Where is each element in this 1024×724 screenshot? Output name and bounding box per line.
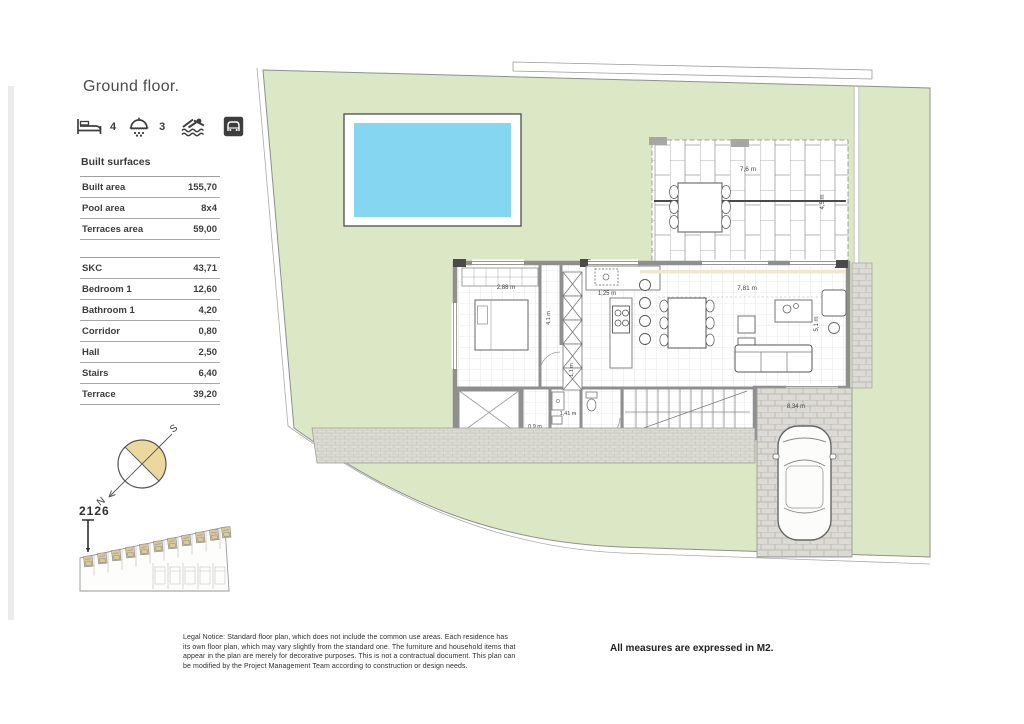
terrace-dining-table (670, 183, 731, 232)
swimming-pool (344, 114, 521, 226)
driveway: 8,34 m (757, 388, 852, 557)
gravel-path (312, 428, 755, 463)
bed-icon (76, 117, 102, 136)
built-surfaces-table-areas: Built area155,70 Pool area8x4 Terraces a… (80, 176, 220, 240)
dim-kitchen-width: 1,25 m (598, 291, 616, 297)
bedroom-count: 4 (110, 121, 116, 133)
amenities-row: 4 3 (76, 116, 244, 137)
table-row: Built area155,70 (80, 177, 220, 198)
floor-plan-drawing: 7,6 m 4,5 m 2,88 m 4,1 m (250, 40, 940, 630)
built-surfaces-table-rooms: SKC43,71 Bedroom 112,60 Bathroom 14,20 C… (80, 257, 220, 405)
dim-terrace-width: 7,6 m (740, 166, 756, 173)
compass-south-label: S (168, 422, 180, 435)
table-row: Hall2,50 (80, 342, 220, 363)
roof-terrace: 7,6 m 4,5 m (649, 137, 848, 263)
dim-bath-width: 1,41 m (560, 411, 577, 417)
table-row: SKC43,71 (80, 258, 220, 279)
table-row: Bathroom 14,20 (80, 300, 220, 321)
dim-terrace-depth: 4,5 m (820, 194, 826, 209)
table-row: Pool area8x4 (80, 198, 220, 219)
dim-driveway-length: 8,34 m (787, 404, 805, 410)
dim-living-width: 7,81 m (737, 285, 757, 292)
shower-icon (127, 116, 151, 137)
bathroom-count: 3 (159, 121, 165, 133)
unit-number-label: 2126 (79, 504, 110, 518)
car (773, 426, 836, 540)
sofa (735, 345, 812, 372)
built-surfaces-heading: Built surfaces (81, 156, 150, 168)
boundary-fence-band (513, 62, 872, 79)
table-row: Terraces area59,00 (80, 219, 220, 240)
table-row: Stairs6,40 (80, 363, 220, 384)
legal-notice: Legal Notice: Standard floor plan, which… (183, 633, 517, 672)
scan-edge-artifact (8, 86, 14, 620)
page-title: Ground floor. (83, 78, 179, 96)
table-row: Bedroom 112,60 (80, 279, 220, 300)
garage-icon (223, 116, 244, 137)
measures-note: All measures are expressed in M2. (610, 643, 773, 654)
table-row: Terrace39,20 (80, 384, 220, 405)
side-terrace-strip (852, 263, 872, 388)
side-boundary-line (853, 87, 860, 263)
dim-hall-width: 1,1 m (569, 363, 575, 377)
dim-corridor-depth: 4,1 m (546, 311, 552, 325)
site-plan-locator: 2126 (75, 503, 237, 606)
dim-living-depth: 5,1 m (814, 316, 820, 331)
compass-rose: S N (96, 418, 188, 515)
table-row: Corridor0,80 (80, 321, 220, 342)
swimmer-icon (180, 116, 208, 137)
dim-bedroom-width: 2,88 m (497, 285, 515, 291)
